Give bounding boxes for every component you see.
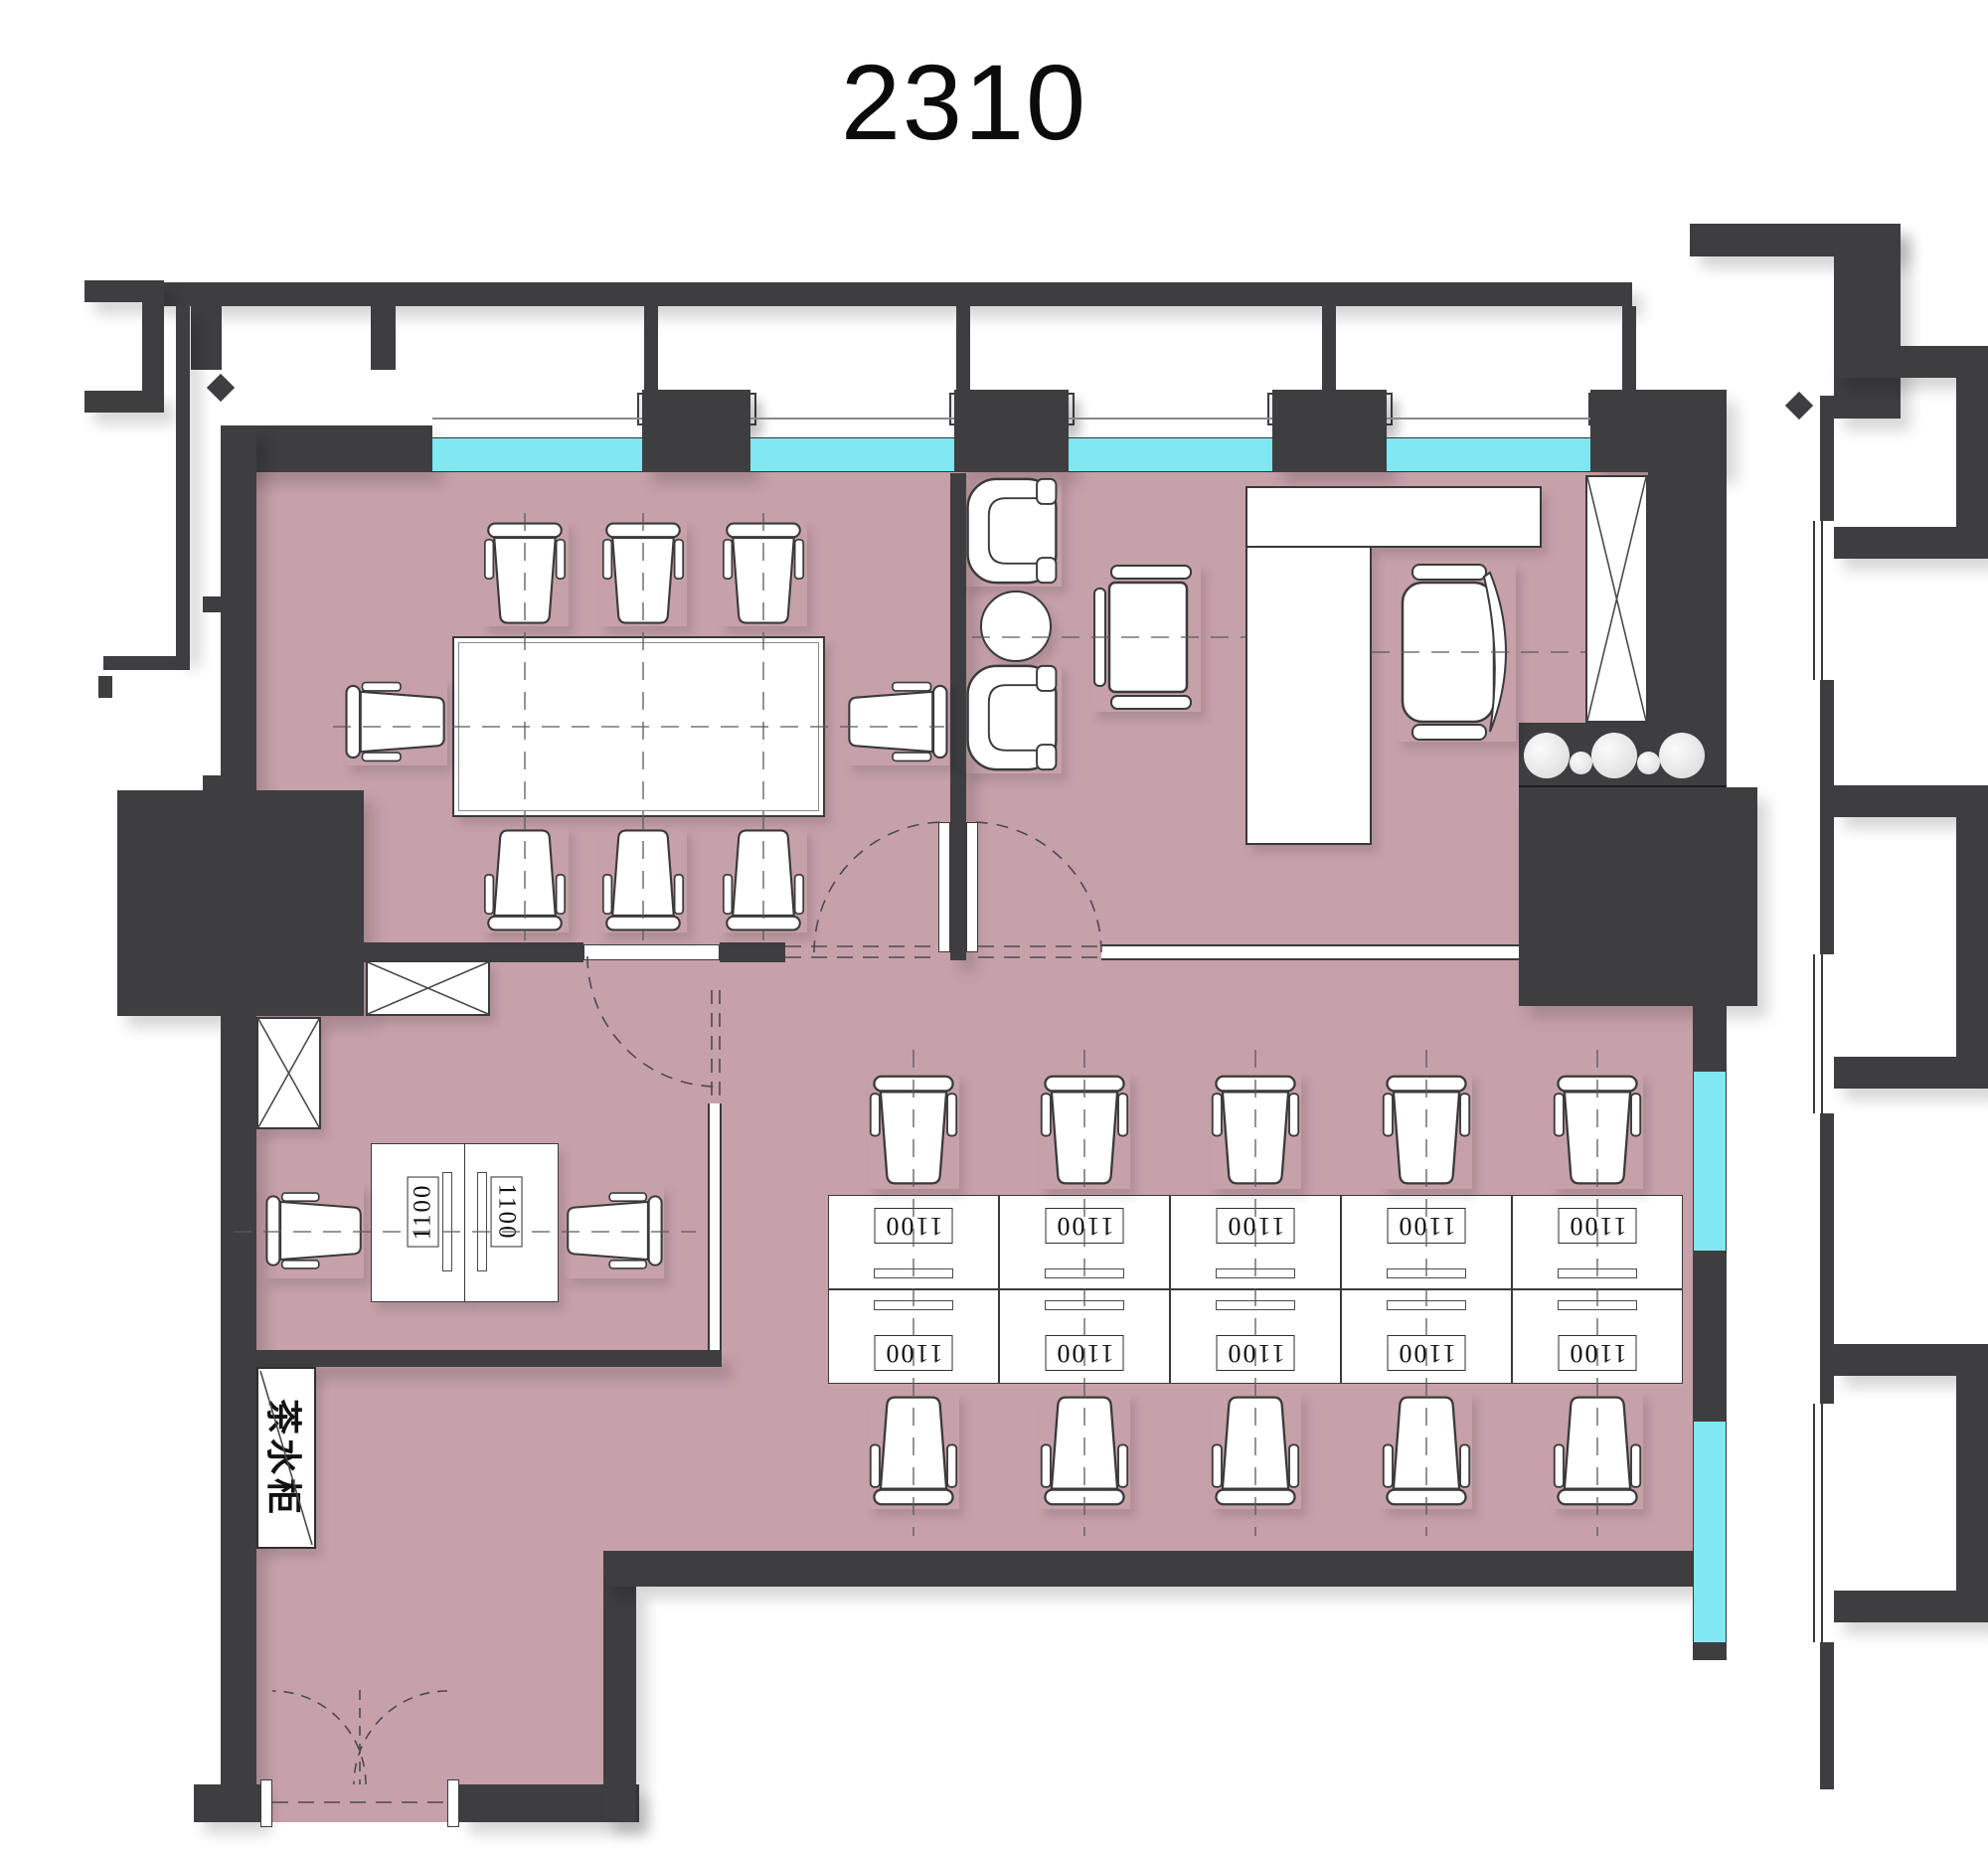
desk-size-label: 1100	[1558, 1335, 1636, 1371]
facade-glazing	[1813, 954, 1823, 1113]
kitchen-side-wall	[1648, 437, 1727, 723]
meeting-door-leaf-left	[938, 822, 950, 952]
cable-slot	[874, 1300, 953, 1310]
lounge-armchair	[962, 475, 1062, 587]
right-wall	[1693, 1006, 1727, 1072]
workstation-desk: 1100	[1512, 1289, 1683, 1384]
survey-marker	[207, 374, 235, 402]
window-stop	[1693, 1642, 1727, 1660]
workstation-desk: 1100	[1341, 1289, 1512, 1384]
window	[1069, 437, 1272, 472]
facade-glazing	[1813, 1404, 1823, 1642]
window	[750, 437, 954, 472]
corridor-right-wall	[1820, 680, 1834, 954]
small-office-glass-wall	[708, 1103, 722, 1350]
small-office-desk: 1100	[371, 1143, 465, 1302]
chair	[264, 1183, 364, 1278]
window	[1387, 437, 1590, 472]
workstation-desk: 1100	[1512, 1195, 1683, 1289]
plan-title: 2310	[686, 40, 1242, 164]
window-right	[1693, 1422, 1727, 1642]
chair	[481, 521, 569, 626]
small-office-door-leaf	[583, 944, 720, 960]
chair	[565, 1183, 664, 1278]
corridor-right-wall	[1820, 396, 1834, 521]
cable-slot	[1045, 1268, 1124, 1278]
conference-table	[452, 636, 825, 817]
workstation-desk: 1100	[999, 1289, 1170, 1384]
left-wall-lower	[221, 1016, 256, 1801]
corridor-left-stub	[98, 676, 112, 698]
chair	[1552, 1072, 1643, 1189]
outer-pillar	[191, 306, 222, 370]
lounge-armchair	[962, 662, 1062, 773]
cable-slot	[1045, 1300, 1124, 1310]
outer-pillar	[1322, 306, 1336, 392]
pantry-cabinet-label: 茶水柜	[260, 1398, 312, 1517]
entry-wall-left	[194, 1784, 260, 1822]
workstation-desk: 1100	[1170, 1195, 1341, 1289]
chair	[720, 827, 807, 932]
cable-slot	[1558, 1300, 1637, 1310]
window-mullion	[642, 390, 750, 472]
chair	[1210, 1392, 1301, 1509]
strip-east-wall	[603, 1587, 636, 1822]
chair	[481, 827, 569, 932]
pantry-cabinet: 茶水柜	[256, 1367, 316, 1549]
chair	[846, 678, 949, 765]
wall-tab	[203, 775, 221, 791]
outer-pillar	[956, 306, 970, 392]
desk-size-label: 1100	[1216, 1335, 1294, 1371]
interior-wall	[720, 942, 785, 962]
chair	[599, 521, 687, 626]
sink-basin	[1659, 733, 1705, 778]
meeting-door-leaf-right	[966, 822, 978, 952]
outer-pillar	[371, 306, 396, 370]
small-office-south-wall	[256, 1350, 722, 1367]
cable-slot	[1216, 1268, 1295, 1278]
desk-size-label: 1100	[1387, 1335, 1465, 1371]
corridor-right-wall	[1820, 1113, 1834, 1404]
fcu-box	[256, 1017, 321, 1129]
outer-band-top	[164, 282, 1632, 306]
window	[432, 437, 642, 472]
cable-slot	[1387, 1300, 1466, 1310]
desk-size-label: 1100	[1387, 1208, 1465, 1244]
fcu-box	[366, 960, 490, 1016]
outer-pillar	[644, 306, 658, 392]
corridor-left-wall	[176, 306, 190, 656]
executive-desk-return	[1245, 486, 1542, 548]
entry-door-jamb	[447, 1779, 459, 1827]
neighbor-wall	[1956, 1344, 1988, 1622]
chair	[1552, 1392, 1643, 1509]
neighbor-wall	[1956, 785, 1988, 1089]
workstation-desk: 1100	[828, 1289, 999, 1384]
chair	[720, 521, 807, 626]
entry-door-jamb	[260, 1779, 272, 1827]
window-stop	[1693, 1404, 1727, 1422]
floor-plan: 2310	[0, 0, 1988, 1855]
top-wall-segment	[227, 425, 432, 472]
interior-wall	[364, 942, 583, 962]
desk-size-label: 1100	[1216, 1208, 1294, 1244]
desk-size-label: 1100	[1045, 1335, 1123, 1371]
chair	[344, 678, 447, 765]
cable-slot	[1216, 1300, 1295, 1310]
workstation-desk: 1100	[828, 1195, 999, 1289]
cable-slot	[1558, 1268, 1637, 1278]
workstation-desk: 1100	[1341, 1195, 1512, 1289]
service-block	[1519, 787, 1757, 1006]
workstation-desk: 1100	[1170, 1289, 1341, 1384]
sink-basin	[1591, 733, 1637, 778]
desk-size-label: 1100	[408, 1176, 439, 1247]
glass-wall	[1101, 944, 1521, 960]
window-mullion	[1272, 390, 1387, 472]
desk-size-label: 1100	[1558, 1208, 1636, 1244]
workstation-desk: 1100	[999, 1195, 1170, 1289]
floor-entry-threshold	[272, 1784, 447, 1822]
window-right	[1693, 1072, 1727, 1251]
neighbor-wall	[1956, 346, 1988, 559]
facade-glazing	[1813, 521, 1823, 680]
small-office-desk: 1100	[464, 1143, 559, 1302]
cable-slot	[874, 1268, 953, 1278]
chair	[1381, 1072, 1472, 1189]
corridor-left-step	[103, 656, 190, 670]
faucet-dot	[1570, 752, 1592, 774]
open-office-south-wall	[603, 1551, 1693, 1587]
guest-chair	[1091, 563, 1201, 712]
chair	[1039, 1072, 1130, 1189]
desk-size-label: 1100	[874, 1335, 952, 1371]
round-side-table	[980, 590, 1052, 662]
chair	[868, 1072, 959, 1189]
executive-chair	[1397, 563, 1516, 742]
faucet-dot	[1637, 752, 1660, 774]
chair	[1039, 1392, 1130, 1509]
neighbor-wall	[84, 391, 164, 413]
desk-size-label: 1100	[874, 1208, 952, 1244]
corridor-right-wall	[1820, 1642, 1834, 1789]
chair	[1210, 1072, 1301, 1189]
cable-slot	[1387, 1268, 1466, 1278]
chair	[599, 827, 687, 932]
core-block	[117, 790, 364, 1016]
chair	[868, 1392, 959, 1509]
outer-pillar	[1622, 306, 1636, 392]
survey-marker	[1785, 392, 1813, 420]
sink-basin	[1524, 733, 1570, 778]
desk-size-label: 1100	[1045, 1208, 1123, 1244]
chair	[1381, 1392, 1472, 1509]
window-mullion	[954, 390, 1069, 472]
desk-size-label: 1100	[490, 1176, 522, 1247]
neighbor-wall	[1834, 224, 1901, 419]
executive-desk	[1245, 546, 1372, 845]
shaft-box	[1585, 475, 1648, 723]
wall-tab	[203, 596, 221, 612]
left-wall-upper	[221, 425, 256, 790]
right-wall	[1693, 1251, 1727, 1404]
